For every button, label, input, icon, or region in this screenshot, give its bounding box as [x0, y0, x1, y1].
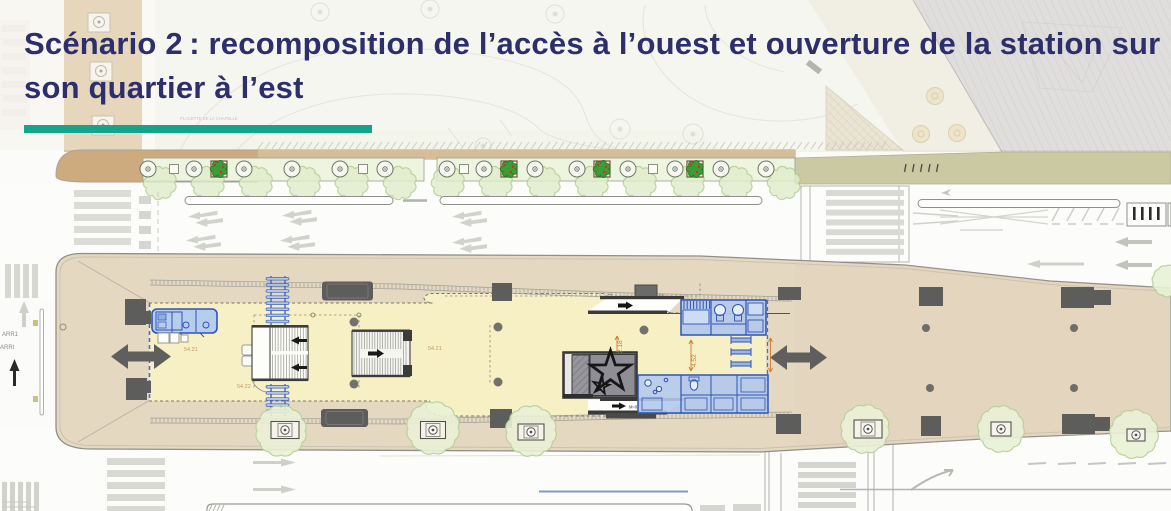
svg-text:M=0: M=0 [629, 405, 638, 410]
svg-text:54.21: 54.21 [184, 347, 198, 353]
svg-text:ARRt: ARRt [0, 345, 15, 351]
svg-text:ARR1: ARR1 [2, 332, 19, 338]
svg-text:54.21: 54.21 [428, 346, 442, 352]
svg-text:4.52: 4.52 [691, 354, 698, 367]
svg-text:54.22: 54.22 [237, 384, 251, 390]
svg-text:2.18: 2.18 [617, 340, 624, 353]
